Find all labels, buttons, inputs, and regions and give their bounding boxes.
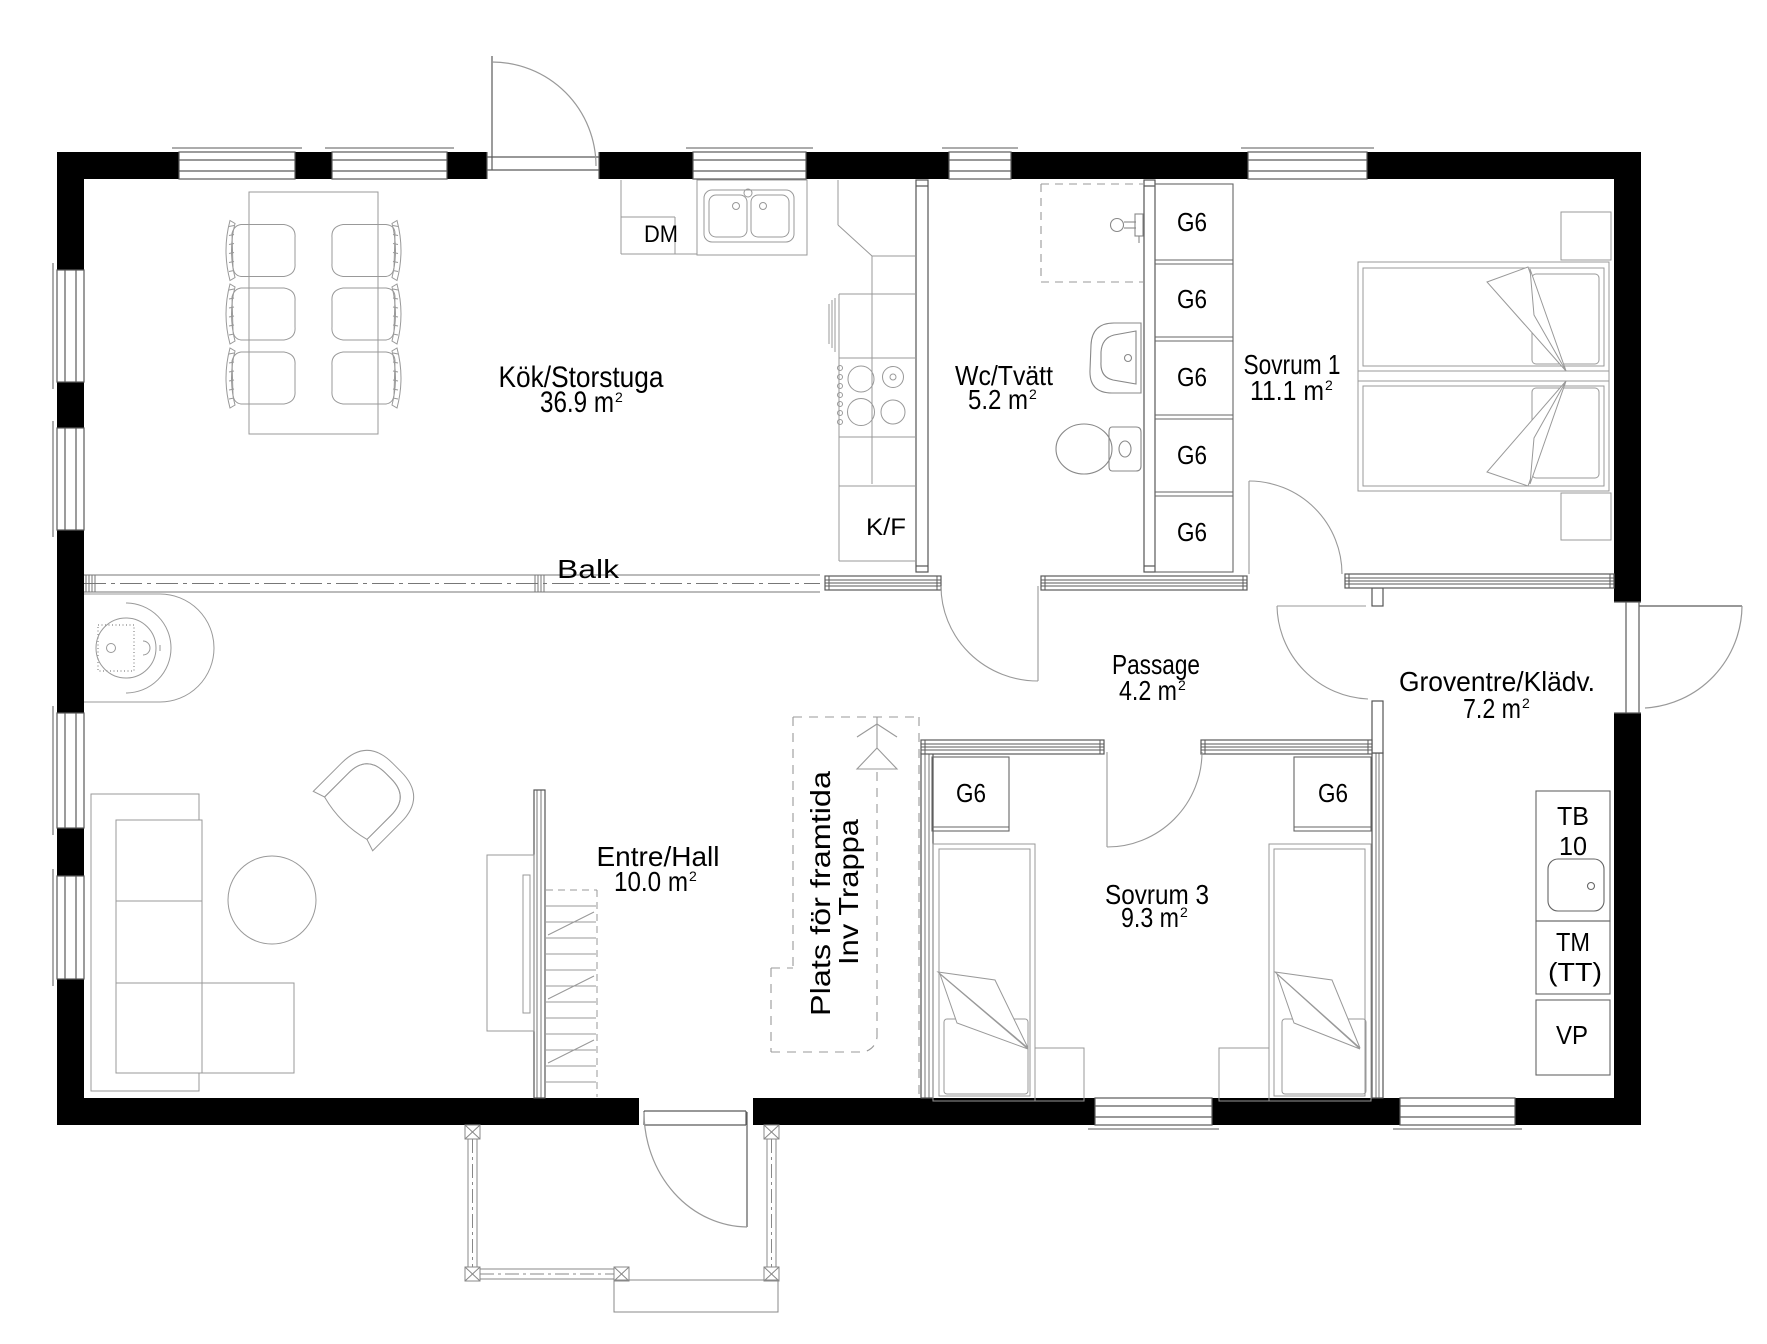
- svg-text:K/F: K/F: [866, 514, 906, 541]
- svg-text:10.0 m: 10.0 m: [614, 866, 688, 897]
- svg-text:DM: DM: [644, 221, 678, 248]
- svg-text:G6: G6: [1177, 284, 1207, 314]
- svg-text:VP: VP: [1556, 1020, 1588, 1050]
- svg-text:2: 2: [1180, 904, 1188, 920]
- svg-text:G6: G6: [1177, 207, 1207, 237]
- svg-text:2: 2: [1178, 677, 1186, 693]
- svg-text:G6: G6: [1177, 440, 1207, 470]
- svg-text:2: 2: [1325, 377, 1333, 393]
- svg-text:2: 2: [1029, 386, 1037, 402]
- svg-text:2: 2: [615, 389, 623, 405]
- svg-text:2: 2: [1522, 695, 1530, 711]
- svg-text:2: 2: [689, 868, 697, 884]
- svg-text:7.2 m: 7.2 m: [1463, 693, 1521, 724]
- svg-text:Balk: Balk: [557, 554, 620, 584]
- svg-text:5.2 m: 5.2 m: [968, 384, 1028, 415]
- svg-text:Plats för framtida: Plats för framtida: [805, 771, 836, 1016]
- svg-text:11.1 m: 11.1 m: [1250, 375, 1324, 406]
- svg-text:4.2 m: 4.2 m: [1119, 675, 1177, 706]
- svg-text:G6: G6: [956, 778, 986, 808]
- svg-text:Inv Trappa: Inv Trappa: [833, 819, 864, 965]
- svg-text:10: 10: [1559, 831, 1587, 861]
- svg-text:TB: TB: [1557, 801, 1589, 831]
- svg-text:G6: G6: [1318, 778, 1348, 808]
- svg-text:36.9 m: 36.9 m: [540, 386, 614, 419]
- svg-text:TM: TM: [1556, 927, 1590, 957]
- svg-text:G6: G6: [1177, 362, 1207, 392]
- svg-text:G6: G6: [1177, 517, 1207, 547]
- svg-text:9.3 m: 9.3 m: [1121, 902, 1179, 933]
- svg-text:(TT): (TT): [1548, 957, 1602, 987]
